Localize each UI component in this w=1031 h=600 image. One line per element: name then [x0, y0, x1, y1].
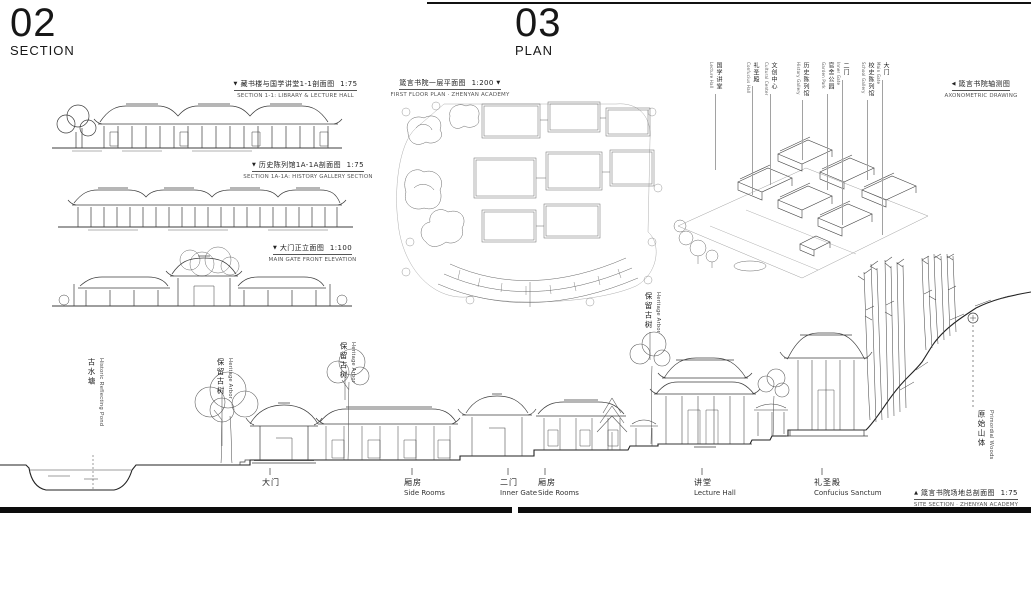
- caption-axonometric: ◀ 箴言书院轴测图 AXONOMETRIC DRAWING: [936, 71, 1026, 99]
- section-1-1-drawing: [52, 90, 342, 155]
- caption-scale: 1:200: [472, 79, 494, 87]
- triangle-down-icon: ▼: [496, 80, 500, 86]
- label-main-gate: 大门: [262, 477, 280, 489]
- footer-bar-right: [518, 507, 1031, 513]
- axo-label-school-gallery: School Gallery 校史陈列馆: [861, 62, 875, 97]
- triangle-left-icon: ◀: [952, 81, 956, 87]
- label-side-rooms-2: 厢房 Side Rooms: [538, 477, 579, 497]
- caption-zh: 历史陈列馆1A-1A剖面图: [259, 161, 341, 169]
- caption-zh: 箴言书院轴测图: [959, 80, 1011, 88]
- axo-leader-line: [842, 80, 843, 225]
- caption-scale: 1:75: [340, 80, 357, 88]
- axo-leader-line: [752, 86, 753, 195]
- axo-leader-line: [715, 94, 716, 170]
- label-heritage-arbor-3: 保留古树 Heritage Arbor: [643, 292, 661, 333]
- plan-number: 03: [515, 4, 562, 42]
- footer-bar-left: [0, 507, 512, 513]
- axo-leader-line: [802, 100, 803, 160]
- top-rule: [427, 2, 1031, 4]
- axo-label-garden-park: Garden Park 官舍公园: [821, 62, 835, 90]
- label-side-rooms-1: 厢房 Side Rooms: [404, 477, 445, 497]
- label-heritage-arbor-1: 保留古树 Heritage Arbor: [215, 358, 233, 399]
- header-plan: 03 PLAN: [515, 4, 562, 58]
- section-label: SECTION: [10, 43, 75, 58]
- triangle-down-icon: ▼: [252, 162, 256, 168]
- axo-label-inner-gate: Inner Gate 二门: [836, 62, 850, 85]
- axo-label-cultural-center: Cultural Center 文创中心: [764, 62, 778, 95]
- label-lecture-hall: 讲堂 Lecture Hall: [694, 477, 736, 497]
- caption-zh: 箴言书院一层平面图: [399, 79, 466, 87]
- label-primordial-woods: 原始山体 Primordial Woods: [976, 410, 994, 460]
- triangle-down-icon: ▼: [234, 81, 238, 87]
- axo-label-main-gate: Main Gate 大门: [876, 62, 890, 84]
- presentation-board: 02 SECTION 03 PLAN ▼ 藏书楼与国学讲堂1-1剖面图 1:75…: [0, 0, 1031, 600]
- site-section-drawing: [0, 250, 1031, 506]
- label-confucius-sanctum: 礼圣殿 Confucius Sanctum: [814, 477, 882, 497]
- label-inner-gate: 二门 Inner Gate: [500, 477, 537, 497]
- axo-label-lecture-hall: Lecture Hall 国学讲堂: [709, 62, 723, 90]
- header-section: 02 SECTION: [10, 4, 75, 58]
- axo-leader-line: [867, 100, 868, 180]
- caption-zh: 藏书楼与国学讲堂1-1剖面图: [240, 80, 334, 88]
- axo-leader-line: [770, 94, 771, 185]
- axo-leader-line: [882, 80, 883, 235]
- label-heritage-arbor-2: 保留古树 Heritage Arbor: [338, 342, 356, 383]
- section-number: 02: [10, 4, 75, 42]
- label-historic-pond: 古水塘 Historic Reflecting Pond: [86, 358, 104, 426]
- axo-leader-line: [827, 94, 828, 190]
- axo-label-history-gallery: History Gallery 历史陈列馆: [796, 62, 810, 97]
- caption-en: AXONOMETRIC DRAWING: [936, 93, 1026, 99]
- caption-scale: 1:75: [347, 161, 364, 169]
- plan-label: PLAN: [515, 43, 562, 58]
- section-1a-1a-drawing: [58, 175, 353, 233]
- axo-label-confucius-hall: Confucius Hall 礼圣殿: [746, 62, 760, 93]
